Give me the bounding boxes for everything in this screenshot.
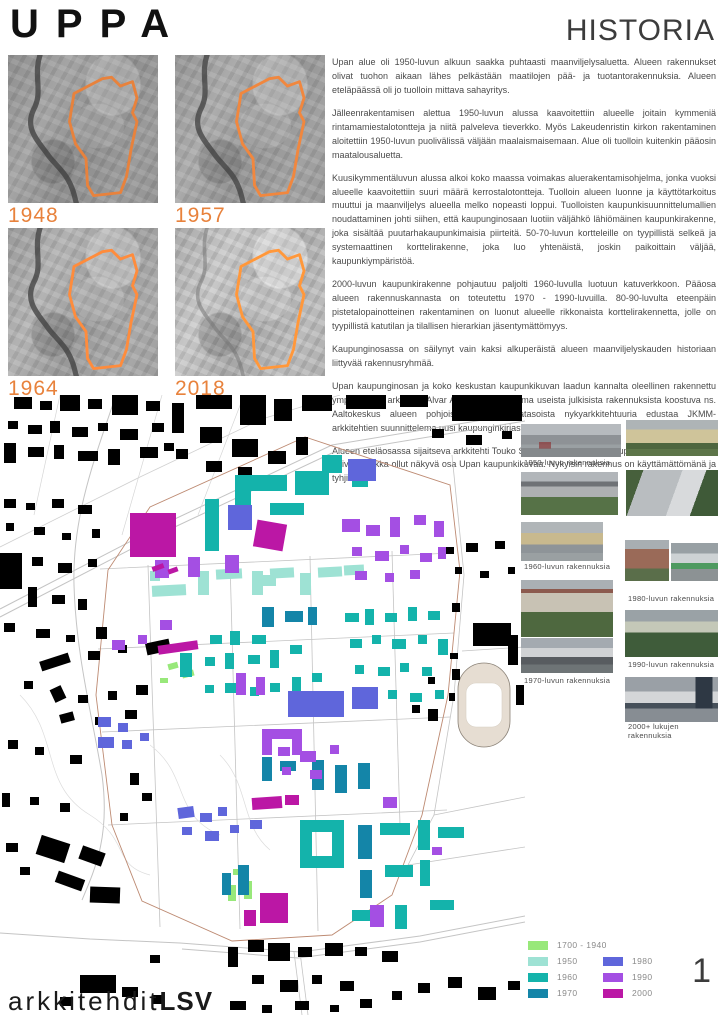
map-building [222, 873, 231, 895]
map-building [120, 813, 128, 821]
map-building [312, 673, 322, 682]
map-building [130, 773, 139, 785]
map-building [358, 825, 372, 859]
map-building [62, 533, 71, 540]
map-building [225, 653, 234, 669]
legend-item: 1970 [528, 988, 578, 998]
map-building [167, 566, 178, 574]
map-building [325, 943, 343, 956]
map-building [72, 427, 88, 437]
map-building [448, 977, 462, 988]
map-building [152, 584, 187, 597]
map-building [36, 835, 71, 863]
map-building [180, 653, 192, 677]
aerial-photo [8, 55, 158, 203]
map-building [252, 796, 283, 810]
map-building [210, 635, 222, 644]
photo-1960s-2 [626, 470, 718, 516]
map-building [355, 571, 367, 580]
area-boundary-outline [237, 77, 305, 195]
map-buildings [0, 395, 524, 1013]
map-building [295, 1001, 309, 1010]
map-building [30, 797, 39, 805]
area-boundary-outline [70, 77, 138, 195]
page-number: 1 [692, 952, 711, 991]
map-building [78, 599, 87, 610]
map-building [96, 627, 107, 639]
map-building [508, 635, 518, 665]
map-building [248, 940, 264, 952]
map-building [382, 951, 398, 962]
map-building [452, 603, 460, 612]
map-building [508, 567, 515, 574]
map-building [300, 573, 311, 595]
map-building [252, 571, 263, 595]
map-building [388, 690, 397, 699]
map-building [366, 525, 380, 536]
map-building [400, 545, 409, 554]
map-building [450, 653, 458, 659]
legend-item: 2000 [603, 988, 653, 998]
map-building [238, 865, 249, 895]
map-building [438, 827, 464, 838]
legend-label: 1980 [632, 956, 653, 966]
legend-item: 1950 [528, 956, 578, 966]
map-building [14, 397, 32, 409]
map-building [176, 449, 188, 459]
map-building [78, 505, 92, 514]
map-building [142, 793, 152, 801]
map-building [236, 673, 246, 695]
aerial-photo [175, 228, 325, 376]
legend-label: 2000 [632, 988, 653, 998]
map-building [435, 690, 444, 699]
logo-text-light: arkkitehdit [8, 986, 160, 1016]
map-building [346, 395, 386, 409]
legend-item: 1960 [528, 972, 578, 982]
photo-caption-1960s: 1960-luvun rakennuksia [524, 562, 610, 571]
map-building [292, 677, 301, 691]
map-building [410, 570, 420, 579]
map-building [196, 395, 232, 409]
map-building [383, 797, 397, 808]
map-building [428, 709, 438, 721]
photo-2000s-1 [625, 677, 718, 722]
map-building [60, 803, 70, 812]
map-building [78, 451, 98, 461]
aerial-photo-cell: 1957 [175, 55, 325, 228]
photo-1980s-2 [671, 543, 718, 581]
map-building [4, 499, 16, 508]
map-building [302, 395, 332, 411]
map-building [160, 678, 168, 683]
map-building [318, 566, 342, 577]
map-building [40, 401, 52, 410]
map-building [248, 655, 260, 664]
photo-caption-1980s: 1980-luvun rakennuksia [628, 594, 714, 603]
map-building [34, 527, 45, 535]
map-building [26, 503, 35, 510]
map-building [432, 429, 444, 438]
map-building [2, 793, 10, 807]
map-building [428, 611, 440, 620]
legend-swatch [603, 989, 623, 998]
map-building [262, 607, 274, 627]
map-building [205, 685, 214, 693]
map-building [164, 443, 174, 451]
map-building [466, 435, 482, 445]
map-building [408, 607, 417, 621]
map-building [122, 740, 132, 749]
map-building [160, 620, 172, 630]
photo-caption-2000s: 2000+ lukujen rakennuksia [628, 722, 723, 740]
map-building [8, 421, 18, 429]
map-building [438, 547, 446, 559]
map-building [308, 607, 317, 625]
photo-1980s-1 [625, 540, 669, 581]
photo-1950s-1 [521, 424, 621, 457]
map-building [385, 573, 394, 582]
map-building [370, 905, 384, 927]
map-building [240, 395, 266, 425]
legend-swatch [603, 973, 623, 982]
map-building [28, 425, 42, 434]
map-building [206, 461, 222, 472]
map-building [380, 823, 410, 835]
map-building [268, 451, 286, 464]
map-building [335, 765, 347, 793]
map-building [285, 611, 303, 622]
map-building [282, 767, 291, 775]
map-building [70, 755, 82, 764]
map-building [449, 693, 455, 701]
map-building [400, 663, 409, 672]
map-building [473, 623, 511, 646]
map-building [146, 401, 160, 411]
map-building [88, 559, 97, 567]
map-building [108, 691, 117, 700]
map-building [295, 471, 329, 495]
map-building [330, 745, 339, 754]
map-building [92, 529, 100, 538]
aerial-year-label: 1957 [175, 204, 325, 228]
map-building [262, 1005, 272, 1013]
map-building [188, 557, 200, 577]
map-building [348, 459, 376, 481]
map-building [136, 685, 148, 695]
map-building [244, 910, 256, 926]
map-building [290, 645, 302, 654]
map-building [28, 587, 37, 607]
history-paragraph: 2000-luvun kaupunkirakenne pohjautuu pal… [332, 278, 716, 334]
map-building [253, 520, 287, 552]
map-building [278, 747, 290, 756]
map-building [225, 555, 239, 573]
map-building [140, 733, 149, 741]
map-building [50, 421, 60, 433]
map-building [36, 629, 50, 638]
legend-label: 1700 - 1940 [557, 940, 607, 950]
legend-label: 1990 [632, 972, 653, 982]
map-building [285, 795, 299, 805]
map-building [55, 871, 85, 892]
map-building [50, 685, 67, 703]
map-building [445, 547, 454, 554]
legend-swatch [528, 941, 548, 950]
map-building [508, 981, 520, 990]
map-building [88, 651, 100, 660]
map-building [205, 831, 219, 841]
map-building [88, 399, 102, 409]
map-building [98, 423, 108, 431]
map-building [230, 825, 239, 833]
map-building [480, 571, 489, 578]
map-building [355, 947, 367, 956]
map-building [138, 635, 147, 644]
legend-swatch [528, 973, 548, 982]
photo-1950s-2 [626, 420, 718, 456]
photo-caption-1950s: 1950-luvun rakennuksia [524, 458, 610, 467]
map-building [280, 980, 298, 992]
map-building [268, 943, 290, 961]
map-building [365, 609, 374, 625]
map-building [296, 437, 308, 455]
map-building [452, 395, 522, 421]
map-building [200, 813, 212, 822]
map-building [434, 521, 444, 537]
map-building [300, 751, 316, 762]
map-building [288, 691, 344, 717]
map-building [418, 820, 430, 850]
map-building [90, 886, 121, 903]
map-building [125, 710, 137, 719]
history-paragraph: Jälleenrakentamisen alettua 1950-luvun a… [332, 107, 716, 163]
map-building [6, 523, 14, 531]
map-building [418, 983, 430, 993]
map-building [270, 503, 304, 515]
map-building [52, 499, 64, 508]
map-building [59, 711, 75, 723]
map-building [66, 635, 75, 642]
map-building [330, 1005, 339, 1012]
map-building [177, 806, 194, 819]
map-building [342, 519, 360, 532]
map-building [300, 856, 344, 868]
map-building [452, 669, 460, 680]
map-building [420, 553, 432, 562]
map-building [230, 1001, 246, 1010]
map-building [262, 757, 272, 781]
map-building [352, 547, 362, 556]
logo-text-bold: LSV [160, 986, 214, 1016]
map-building [256, 677, 265, 695]
map-building [228, 947, 238, 967]
map-building [235, 475, 287, 491]
map-building [112, 395, 138, 415]
section-heading: HISTORIA [566, 14, 715, 48]
map-building [455, 567, 462, 574]
map-building [312, 975, 322, 984]
history-paragraph: Upan alue oli 1950-luvun alkuun saakka p… [332, 56, 716, 98]
map-building [112, 640, 125, 650]
map-building [252, 635, 266, 644]
photo-1970s-2 [521, 638, 613, 673]
map-building [428, 677, 435, 684]
city-map [0, 395, 525, 1015]
map-building [400, 395, 428, 407]
map-building [58, 563, 72, 573]
map-building [32, 557, 43, 566]
legend-item: 1990 [603, 972, 653, 982]
sports-stadium [458, 663, 510, 747]
map-building [358, 763, 370, 789]
map-building [0, 553, 22, 589]
legend-item: 1980 [603, 956, 653, 966]
aerial-photo-cell: 1948 [8, 55, 158, 228]
map-building [6, 843, 18, 852]
map-building [150, 955, 160, 963]
map-building [28, 447, 44, 457]
map-building [252, 975, 264, 984]
map-building [54, 445, 64, 459]
map-building [232, 439, 258, 457]
map-building [130, 513, 176, 557]
map-building [414, 515, 426, 525]
photo-1960s-3 [521, 522, 603, 561]
aerial-photo-cell: 2018 [175, 228, 325, 401]
company-logo: arkkitehditLSV [8, 986, 213, 1017]
map-building [225, 683, 237, 693]
map-building [502, 431, 512, 439]
map-building [270, 683, 280, 692]
history-paragraph: Kaupunginosassa on säilynyt vain kaksi a… [332, 343, 716, 371]
map-building [35, 747, 44, 755]
photo-caption-1970s: 1970-luvun rakennuksia [524, 676, 610, 685]
map-building [120, 429, 138, 440]
map-building [516, 685, 524, 705]
map-building [262, 575, 276, 586]
map-building [274, 399, 292, 421]
map-building [390, 517, 400, 537]
map-building [108, 449, 120, 465]
map-building [478, 987, 496, 1000]
map-building [167, 662, 178, 670]
map-building [4, 623, 15, 632]
aerial-photo [8, 228, 158, 376]
map-building [98, 717, 111, 727]
map-building [24, 681, 33, 689]
photo-caption-1990s: 1990-luvun rakennuksia [628, 660, 714, 669]
map-building [345, 613, 359, 622]
legend-label: 1950 [557, 956, 578, 966]
map-building [205, 499, 219, 551]
map-building [432, 847, 442, 855]
map-building [392, 639, 406, 649]
map-building [152, 423, 164, 432]
map-building [352, 687, 378, 709]
legend-label: 1970 [557, 988, 578, 998]
map-building [395, 905, 407, 929]
map-building [270, 650, 279, 668]
map-building [200, 427, 222, 443]
map-building [322, 455, 342, 473]
map-building [412, 705, 420, 713]
map-building [140, 447, 158, 458]
aerial-photo [175, 55, 325, 203]
map-building [238, 467, 252, 476]
map-building [360, 999, 372, 1008]
map-building [4, 443, 16, 463]
legend-label: 1960 [557, 972, 578, 982]
map-building [230, 631, 240, 645]
poster-page: UPPA HISTORIA 1948 1957 1964 [0, 0, 723, 1024]
map-building [182, 827, 192, 835]
map-building [52, 595, 65, 604]
map-building [392, 991, 402, 1000]
aerial-photo-grid: 1948 1957 1964 2018 [8, 55, 325, 401]
area-boundary-outline [237, 250, 305, 368]
map-building [260, 893, 288, 923]
area-boundary-outline [70, 250, 138, 368]
photo-1990s-1 [625, 610, 718, 657]
map-building [78, 695, 88, 703]
map-building [466, 543, 478, 552]
map-building [438, 639, 448, 655]
map-building [385, 613, 397, 622]
map-building [378, 667, 390, 676]
map-legend: 1700 - 1940195019601970198019902000 [528, 940, 718, 1004]
legend-swatch [528, 957, 548, 966]
map-building [422, 667, 432, 676]
map-building [385, 865, 413, 877]
map-building [98, 737, 114, 748]
map-building [340, 981, 354, 991]
map-building [350, 639, 362, 648]
map-building [418, 635, 427, 644]
map-building [78, 845, 105, 866]
map-building [430, 900, 454, 910]
map-building [205, 657, 215, 666]
map-building [218, 807, 227, 816]
legend-item: 1700 - 1940 [528, 940, 607, 950]
map-building [410, 693, 422, 702]
map-building [228, 505, 252, 530]
map-building [372, 635, 381, 644]
map-building [60, 395, 80, 411]
map-building [172, 403, 184, 433]
map-building [495, 541, 505, 549]
page-title: UPPA [10, 2, 186, 47]
aerial-year-label: 1948 [8, 204, 158, 228]
map-building [360, 870, 372, 898]
photo-1960s-1 [521, 472, 618, 515]
map-building [20, 867, 30, 875]
map-building [250, 820, 262, 829]
map-building [118, 723, 128, 732]
photo-1970s-1 [521, 580, 613, 637]
legend-swatch [603, 957, 623, 966]
map-building [375, 551, 389, 561]
map-building [300, 820, 344, 832]
map-building [39, 653, 71, 672]
map-building [8, 740, 18, 749]
map-building [420, 860, 430, 886]
aerial-photo-cell: 1964 [8, 228, 158, 401]
map-building [355, 665, 364, 674]
map-building [262, 729, 272, 755]
legend-swatch [528, 989, 548, 998]
map-building [310, 770, 322, 779]
